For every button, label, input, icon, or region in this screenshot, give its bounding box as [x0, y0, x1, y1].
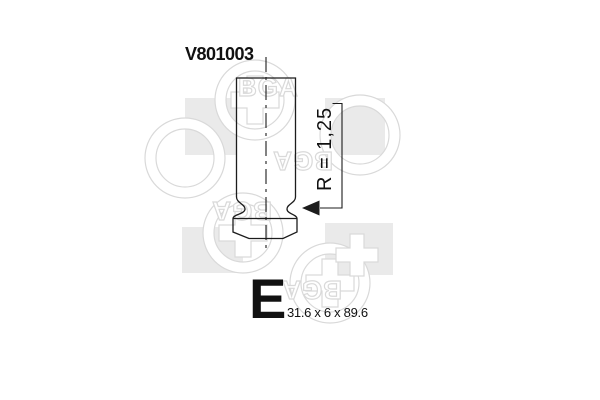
technical-drawing-svg: BGA BGA BGA BGA V801003 R = 1,25 E 31.6 … — [0, 0, 600, 400]
valve-product-drawing: BGA BGA BGA BGA V801003 R = 1,25 E 31.6 … — [0, 0, 600, 400]
watermark-brand-text: BGA — [238, 72, 299, 102]
valve-type-letter: E — [249, 267, 286, 330]
watermark-brand-text: BGA — [281, 275, 342, 305]
dimension-arrow-icon — [302, 201, 320, 216]
watermark-brand-text: BGA — [211, 196, 272, 226]
dimensions-label: 31.6 x 6 x 89.6 — [287, 305, 368, 320]
part-number-label: V801003 — [185, 44, 254, 64]
radius-dimension-label: R = 1,25 — [314, 107, 336, 191]
